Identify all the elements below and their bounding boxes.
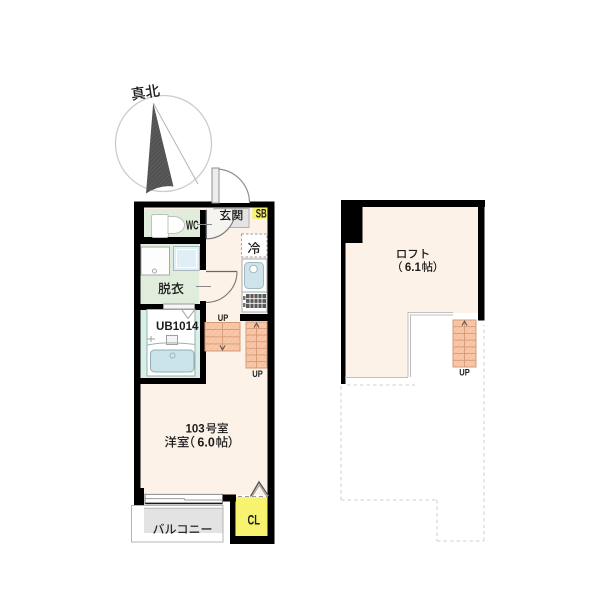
svg-text:UP: UP xyxy=(218,313,229,324)
svg-text:WC: WC xyxy=(186,219,199,233)
svg-text:6.0: 6.0 xyxy=(197,436,214,450)
svg-text:SB: SB xyxy=(256,209,267,221)
svg-text:CL: CL xyxy=(248,512,261,528)
svg-text:UB1014: UB1014 xyxy=(156,319,199,333)
svg-text:6.1: 6.1 xyxy=(405,262,422,274)
svg-text:UP: UP xyxy=(459,368,470,379)
svg-text:UP: UP xyxy=(252,369,263,380)
svg-text:103: 103 xyxy=(186,424,205,436)
